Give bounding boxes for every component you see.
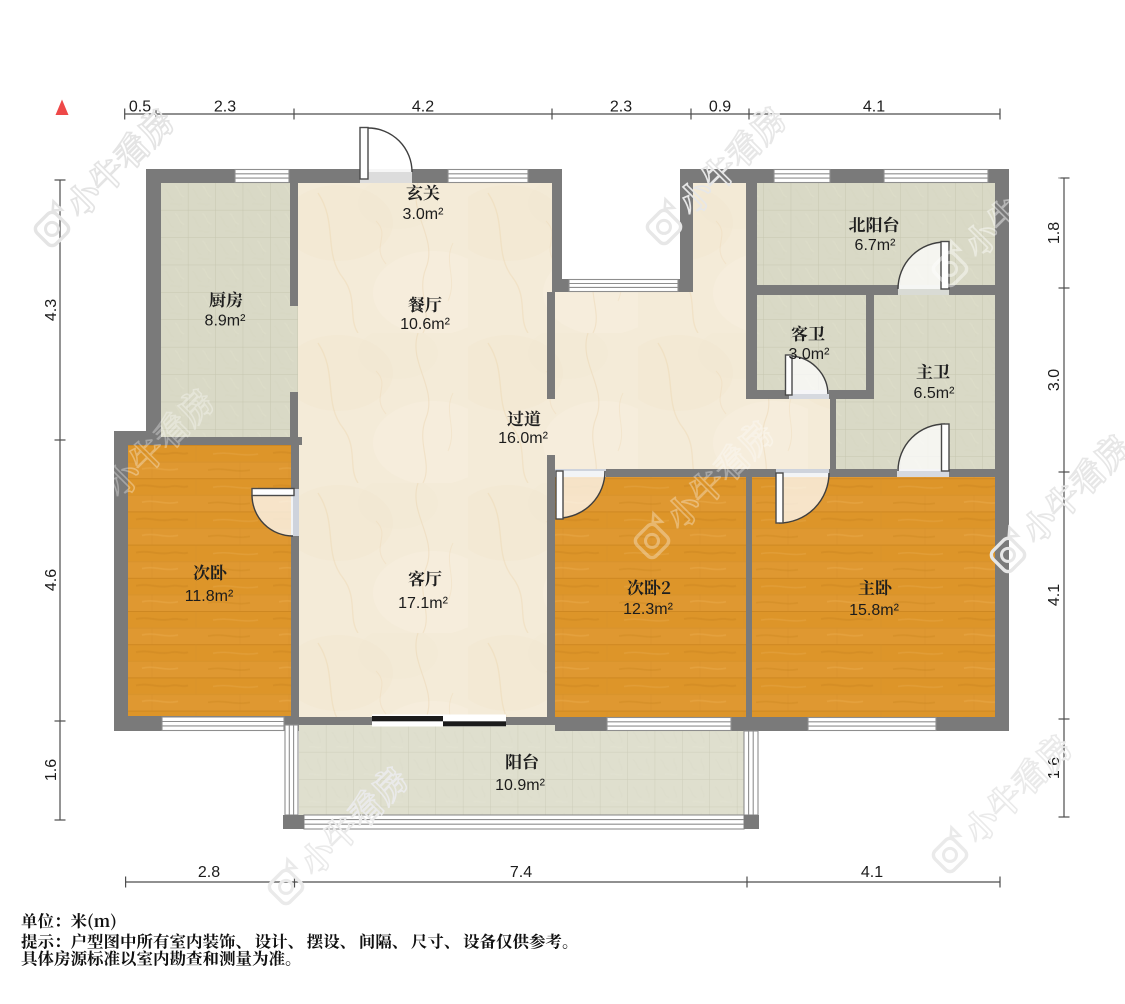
- svg-text:3.0m²: 3.0m²: [403, 206, 445, 223]
- svg-text:7.4: 7.4: [510, 864, 532, 881]
- svg-text:6.7m²: 6.7m²: [855, 237, 897, 254]
- svg-text:15.8m²: 15.8m²: [849, 602, 899, 619]
- svg-text:4.2: 4.2: [412, 99, 434, 116]
- svg-text:0.9: 0.9: [709, 99, 731, 116]
- svg-text:4.1: 4.1: [1046, 584, 1063, 606]
- svg-text:4.1: 4.1: [863, 99, 885, 116]
- svg-text:2.8: 2.8: [198, 864, 220, 881]
- svg-text:4.1: 4.1: [861, 864, 883, 881]
- svg-text:11.8m²: 11.8m²: [185, 588, 234, 605]
- svg-text:0.5: 0.5: [129, 99, 151, 116]
- svg-text:1.8: 1.8: [1046, 222, 1063, 244]
- svg-text:3.0: 3.0: [1046, 369, 1063, 391]
- svg-text:2.3: 2.3: [610, 99, 632, 116]
- svg-text:3.0m²: 3.0m²: [789, 346, 831, 363]
- svg-text:2.3: 2.3: [214, 99, 236, 116]
- svg-text:6.5m²: 6.5m²: [914, 385, 956, 402]
- svg-text:12.3m²: 12.3m²: [623, 601, 673, 618]
- svg-text:4.6: 4.6: [43, 569, 60, 591]
- svg-text:4.3: 4.3: [43, 299, 60, 321]
- svg-text:8.9m²: 8.9m²: [205, 313, 247, 330]
- svg-text:1.6: 1.6: [43, 759, 60, 781]
- svg-text:17.1m²: 17.1m²: [398, 595, 448, 612]
- svg-text:16.0m²: 16.0m²: [498, 430, 548, 447]
- svg-text:10.6m²: 10.6m²: [400, 316, 450, 333]
- svg-text:10.9m²: 10.9m²: [495, 777, 545, 794]
